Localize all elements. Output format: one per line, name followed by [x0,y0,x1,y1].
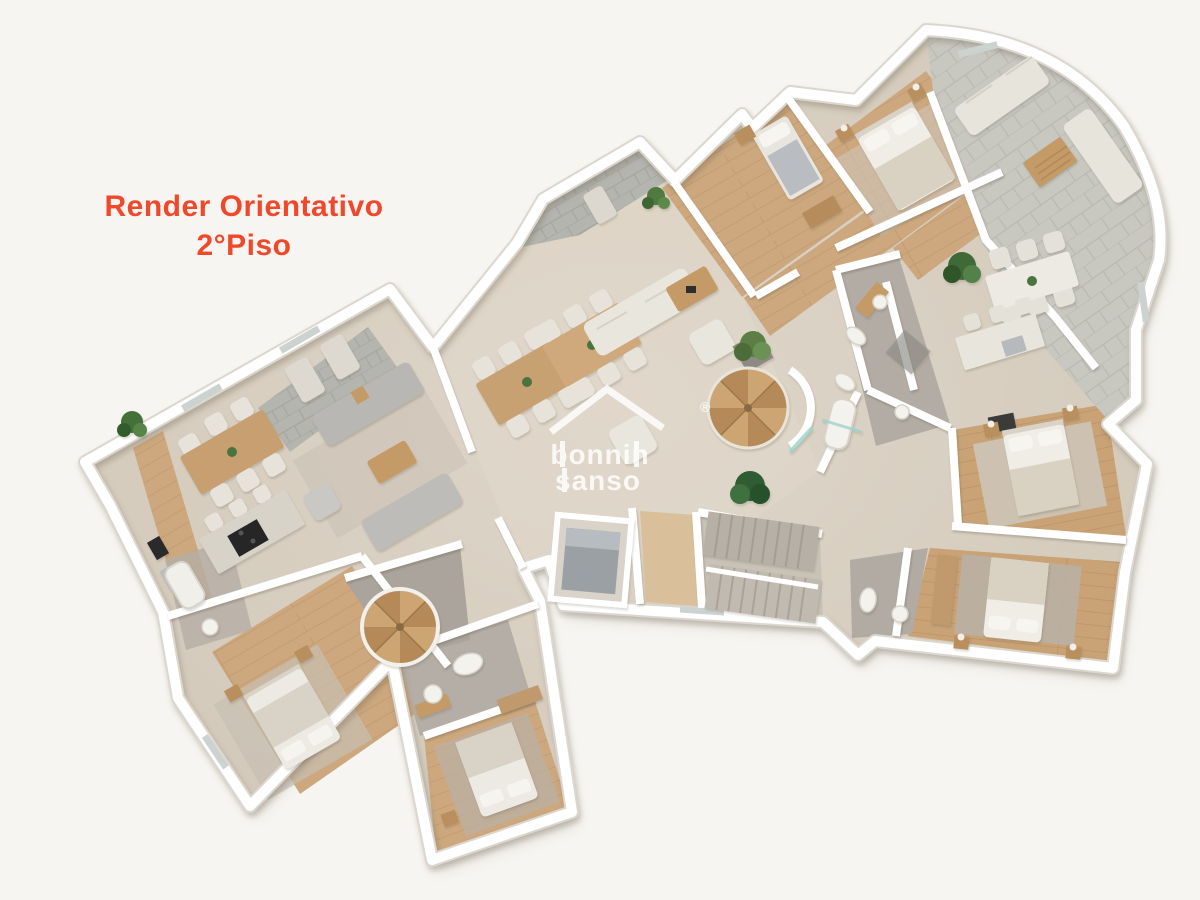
sink [424,685,442,703]
title-line2: 2°Piso [196,229,291,262]
floor-plan-canvas: ® bonnin sanso Render Orientativo 2°Piso [0,0,1200,900]
sink [892,606,908,622]
sink [873,295,887,309]
floor-plan-render: ® bonnin sanso Render Orientativo 2°Piso [0,0,1200,900]
elevator [550,515,631,605]
hall-strip-elevator [640,511,700,606]
table-plant [227,447,237,457]
spiral-staircase-left [362,589,438,665]
title-line1: Render Orientativo [104,190,383,223]
sink [202,619,218,635]
watermark-registered: ® [700,399,711,415]
sink [895,405,909,419]
watermark-line2: sanso [555,465,641,496]
page-title: Render Orientativo 2°Piso [104,190,383,262]
